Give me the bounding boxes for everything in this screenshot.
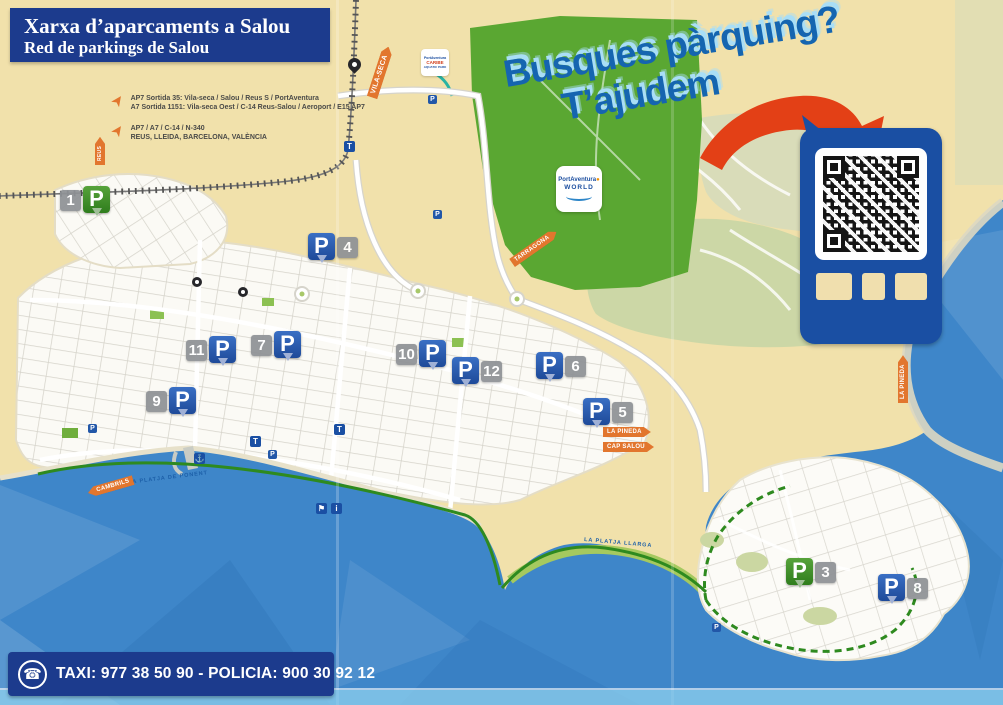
road-sign-cap-salou: CAP SALOU — [603, 442, 654, 452]
portaventura-world-logo: PortAventura● WORLD — [556, 166, 602, 212]
phone-numbers: TAXI: 977 38 50 90 - POLICIA: 900 30 92 … — [56, 665, 375, 683]
mini-parking-sign: P — [88, 424, 97, 433]
marker-p-badge: P — [536, 352, 563, 379]
marker-number: 8 — [907, 578, 928, 599]
road-sign-la-pineda-vertical: LA PINEDA — [898, 355, 908, 403]
marker-number: 4 — [337, 237, 358, 258]
orange-arrow-icon: ➤ — [109, 92, 128, 110]
marker-p-badge: P — [308, 233, 335, 260]
logo-text: PortAventura — [558, 177, 596, 183]
map-subtitle: Red de parkings de Salou — [24, 38, 316, 57]
qr-finder-icon — [823, 230, 845, 252]
anchor-icon: ⚓ — [194, 453, 205, 464]
poi-pin-icon — [238, 287, 248, 297]
mini-parking-sign: P — [428, 95, 437, 104]
mini-parking-sign: P — [712, 623, 721, 632]
logo-text: WORLD — [564, 184, 594, 192]
orange-arrow-icon: ➤ — [109, 122, 128, 140]
marker-number: 9 — [146, 391, 167, 412]
marker-number: 1 — [60, 190, 81, 211]
phone-button — [816, 273, 852, 300]
phone-icon: ☎ — [18, 660, 47, 689]
mini-parking-sign: P — [433, 210, 442, 219]
marker-p-badge: P — [209, 336, 236, 363]
marker-number: 6 — [565, 356, 586, 377]
marker-number: 3 — [815, 562, 836, 583]
legend-row-exits: ➤ AP7 Sortida 35: Vila-seca / Salou / Re… — [112, 94, 365, 112]
parking-marker-11[interactable]: 11 P — [186, 336, 236, 363]
logo-swoosh-icon — [566, 192, 592, 201]
title-box: Xarxa d’aparcaments a Salou Red de parki… — [10, 8, 330, 62]
marker-p-badge: P — [83, 186, 110, 213]
emergency-phone-bar: ☎ TAXI: 977 38 50 90 - POLICIA: 900 30 9… — [8, 652, 334, 696]
legend-exit2-line1: AP7 / A7 / C-14 / N-340 — [131, 124, 267, 133]
marker-number: 10 — [396, 344, 417, 365]
parking-marker-12[interactable]: 12 P — [452, 357, 502, 384]
parking-marker-1[interactable]: 1 P — [60, 186, 110, 213]
caribe-aquatic-park-logo: PortAventura CARIBE AQUATIC PARK — [421, 49, 449, 76]
qr-code[interactable] — [823, 156, 919, 252]
marker-p-badge: P — [786, 558, 813, 585]
legend-exit1-line1: AP7 Sortida 35: Vila-seca / Salou / Reus… — [131, 94, 365, 103]
marker-p-badge: P — [878, 574, 905, 601]
qr-finder-icon — [897, 156, 919, 178]
salou-parking-map: Xarxa d’aparcaments a Salou Red de parki… — [0, 0, 1003, 705]
marker-number: 5 — [612, 402, 633, 423]
beach-flag-icon: ⚑ — [316, 503, 327, 514]
road-sign-la-pineda: LA PINEDA — [603, 427, 651, 437]
logo-text: AQUATIC PARK — [424, 65, 447, 69]
marker-p-badge: P — [274, 331, 301, 358]
transit-stop-icon: T — [334, 424, 345, 435]
parking-marker-5[interactable]: 5 P — [583, 398, 633, 425]
parking-marker-9[interactable]: 9 P — [146, 387, 196, 414]
marker-p-badge: P — [169, 387, 196, 414]
legend-exit2-line2: REUS, LLEIDA, BARCELONA, VALÈNCIA — [131, 133, 267, 142]
parking-marker-3[interactable]: 3 P — [786, 558, 836, 585]
marker-number: 12 — [481, 361, 502, 382]
legend-exit1-line2: A7 Sortida 1151: Vila-seca Oest / C-14 R… — [131, 103, 365, 112]
parking-marker-7[interactable]: 7 P — [251, 331, 301, 358]
parking-marker-4[interactable]: 4 P — [308, 233, 358, 260]
phone-button — [862, 273, 885, 300]
parking-marker-8[interactable]: 8 P — [878, 574, 928, 601]
info-icon: i — [331, 503, 342, 514]
phone-button — [895, 273, 927, 300]
transit-stop-icon: T — [250, 436, 261, 447]
qr-finder-icon — [823, 156, 845, 178]
parking-marker-6[interactable]: 6 P — [536, 352, 586, 379]
marker-number: 11 — [186, 340, 207, 361]
orange-dot-icon: ● — [596, 177, 600, 183]
legend-row-roads: ➤ AP7 / A7 / C-14 / N-340 REUS, LLEIDA, … — [112, 124, 365, 142]
parking-marker-10[interactable]: 10 P — [396, 340, 446, 367]
map-title: Xarxa d’aparcaments a Salou — [24, 14, 316, 38]
qr-panel — [815, 148, 927, 260]
qr-phone — [800, 128, 942, 344]
marker-number: 7 — [251, 335, 272, 356]
marker-p-badge: P — [452, 357, 479, 384]
poi-pin-icon — [192, 277, 202, 287]
marker-p-badge: P — [419, 340, 446, 367]
highway-legend: ➤ AP7 Sortida 35: Vila-seca / Salou / Re… — [112, 94, 365, 154]
marker-p-badge: P — [583, 398, 610, 425]
mini-parking-sign: P — [268, 450, 277, 459]
